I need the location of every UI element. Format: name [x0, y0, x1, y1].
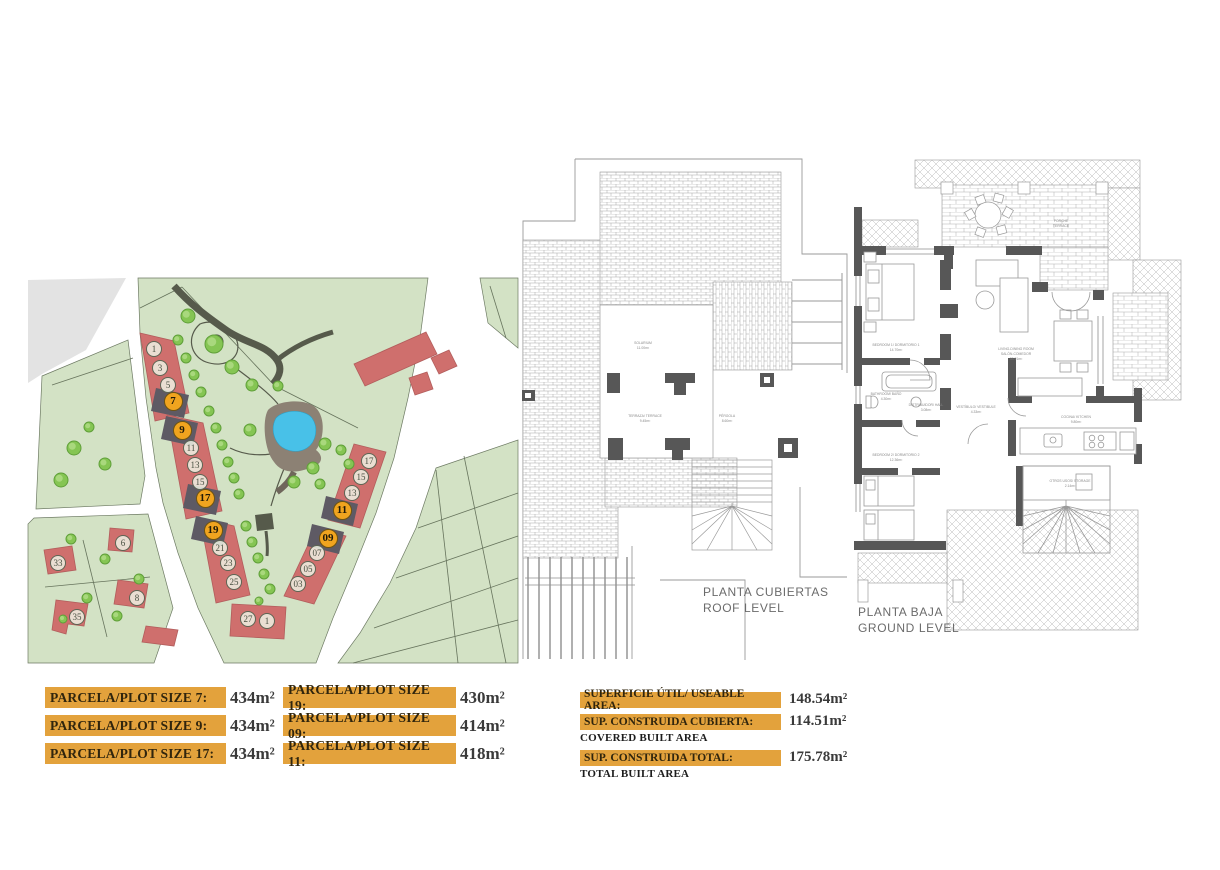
svg-text:11.00m²: 11.00m² [637, 346, 650, 350]
tree-highlight [218, 441, 223, 446]
built-area-row: SUP. CONSTRUIDA CUBIERTA:114.51m²COVERED… [580, 713, 847, 744]
svg-text:LIVING-DINING ROOM: LIVING-DINING ROOM [998, 347, 1034, 351]
svg-text:BEDROOM 1/ DORMITORIO 1: BEDROOM 1/ DORMITORIO 1 [872, 343, 919, 347]
plot-size-row: PARCELA/PLOT SIZE 19:430m² [283, 687, 505, 708]
svg-text:9.80m²: 9.80m² [1071, 420, 1082, 424]
plot-size-value: 414m² [460, 716, 505, 736]
built-area-value: 175.78m² [789, 749, 847, 766]
built-area-label-bar: SUP. CONSTRUIDA CUBIERTA: [580, 714, 781, 730]
tree-highlight [337, 446, 342, 451]
svg-text:12.36m²: 12.36m² [890, 458, 903, 462]
tree-highlight [242, 522, 247, 527]
plot-size-row: PARCELA/PLOT SIZE 7:434m² [45, 687, 275, 708]
tree-highlight [235, 490, 240, 495]
tree-highlight [69, 443, 76, 450]
green-parcels [28, 278, 518, 663]
tree-highlight [207, 337, 216, 346]
tree-highlight [205, 407, 210, 412]
plot-size-row: PARCELA/PLOT SIZE 09:414m² [283, 715, 505, 736]
svg-text:33.91m²: 33.91m² [1010, 357, 1023, 361]
built-area-label-bar: SUP. CONSTRUIDA TOTAL: [580, 750, 781, 766]
svg-text:COCINA/ KITCHEN: COCINA/ KITCHEN [1061, 415, 1092, 419]
tree-highlight [67, 535, 72, 540]
ground-level-plan: PORCHE TERRACE BEDROOM 1/ DORMITORIO 1 1… [848, 148, 1188, 648]
tree-highlight [60, 616, 64, 620]
svg-text:GROUND LEVEL: GROUND LEVEL [858, 621, 959, 635]
svg-text:DISTRIBUIDOR/ HALL: DISTRIBUIDOR/ HALL [909, 403, 944, 407]
tree-highlight [274, 382, 279, 387]
tree-highlight [246, 426, 252, 432]
svg-text:BATHROOM/ BAÑO: BATHROOM/ BAÑO [871, 391, 902, 396]
svg-text:SALÓN-COMEDOR: SALÓN-COMEDOR [1001, 351, 1032, 356]
tree-highlight [309, 464, 315, 470]
svg-text:PORCHE: PORCHE [1054, 219, 1069, 223]
plot-size-row: PARCELA/PLOT SIZE 9:434m² [45, 715, 275, 736]
svg-text:SOLARIUM: SOLARIUM [634, 341, 652, 345]
svg-text:BEDROOM 2/ DORMITORIO 2: BEDROOM 2/ DORMITORIO 2 [872, 453, 919, 457]
plot-size-row: PARCELA/PLOT SIZE 17:434m² [45, 743, 275, 764]
swimming-pool [273, 411, 316, 451]
tree-highlight [266, 585, 271, 590]
svg-text:PLANTA CUBIERTAS: PLANTA CUBIERTAS [703, 585, 829, 599]
tree-highlight [212, 424, 217, 429]
plot-size-column-1: PARCELA/PLOT SIZE 7:434m²PARCELA/PLOT SI… [45, 687, 275, 771]
tree-highlight [290, 478, 296, 484]
built-area-row: SUPERFICIE ÚTIL/ USEABLE AREA:148.54m² [580, 691, 847, 708]
tree-highlight [135, 575, 140, 580]
plot-size-value: 430m² [460, 688, 505, 708]
built-area-label-bar: SUPERFICIE ÚTIL/ USEABLE AREA: [580, 692, 781, 708]
tree-highlight [260, 570, 265, 575]
plot-size-label-bar: PARCELA/PLOT SIZE 09: [283, 715, 456, 736]
roof-fence [525, 546, 635, 659]
svg-text:ROOF LEVEL: ROOF LEVEL [703, 601, 784, 615]
plot-size-value: 418m² [460, 744, 505, 764]
tree-highlight [345, 460, 350, 465]
plot-size-value: 434m² [230, 744, 275, 764]
built-area-value: 148.54m² [789, 691, 847, 708]
tree-highlight [190, 371, 195, 376]
tree-highlight [227, 362, 234, 369]
tree-highlight [224, 458, 229, 463]
svg-text:3.08m²: 3.08m² [921, 408, 932, 412]
site-plan-map [28, 278, 518, 663]
brochure-page: { "colors": { "bar_orange": "#e3a23c", "… [0, 0, 1220, 870]
tree-highlight [85, 423, 90, 428]
svg-text:4.33m²: 4.33m² [971, 410, 982, 414]
tree-highlight [256, 598, 260, 602]
built-area-column: SUPERFICIE ÚTIL/ USEABLE AREA:148.54m²SU… [580, 691, 847, 785]
plot-size-value: 434m² [230, 688, 275, 708]
roof-plan-title: PLANTA CUBIERTAS ROOF LEVEL [703, 585, 829, 615]
svg-text:TERRAZA/ TERRACE: TERRAZA/ TERRACE [628, 414, 663, 418]
plot-size-column-2: PARCELA/PLOT SIZE 19:430m²PARCELA/PLOT S… [283, 687, 505, 771]
tree-highlight [113, 612, 118, 617]
plot-size-label-bar: PARCELA/PLOT SIZE 9: [45, 715, 226, 736]
tree-highlight [174, 336, 179, 341]
tree-highlight [321, 440, 327, 446]
plot-size-label-bar: PARCELA/PLOT SIZE 7: [45, 687, 226, 708]
plot-size-label-bar: PARCELA/PLOT SIZE 19: [283, 687, 456, 708]
tree-highlight [101, 460, 107, 466]
tree-highlight [182, 354, 187, 359]
roof-level-plan: SOLARIUM 11.00m² TERRAZA/ TERRACE 9.45m²… [515, 148, 847, 663]
tree-highlight [101, 555, 106, 560]
plot-size-label-bar: PARCELA/PLOT SIZE 17: [45, 743, 226, 764]
utility-square [255, 513, 274, 531]
svg-text:8.60m²: 8.60m² [722, 419, 733, 423]
svg-text:OTROS USOS/ STORAGE: OTROS USOS/ STORAGE [1049, 479, 1091, 483]
svg-text:PLANTA BAJA: PLANTA BAJA [858, 605, 943, 619]
built-area-value: 114.51m² [789, 713, 846, 730]
svg-text:PÉRGOLA: PÉRGOLA [719, 413, 736, 418]
built-area-sublabel: COVERED BUILT AREA [580, 732, 847, 744]
built-area-sublabel: TOTAL BUILT AREA [580, 768, 847, 780]
svg-text:VESTÍBULO/ VESTIBULE: VESTÍBULO/ VESTIBULE [956, 405, 996, 409]
plot-size-value: 434m² [230, 716, 275, 736]
tree-highlight [248, 381, 254, 387]
tree-highlight [56, 475, 63, 482]
tree-highlight [183, 311, 190, 318]
tree-highlight [254, 554, 259, 559]
svg-text:9.45m²: 9.45m² [640, 419, 651, 423]
tree-highlight [197, 388, 202, 393]
ground-plan-title: PLANTA BAJA GROUND LEVEL [858, 605, 959, 635]
svg-text:2.14m²: 2.14m² [1065, 484, 1076, 488]
svg-text:TERRACE: TERRACE [1053, 224, 1070, 228]
plot-size-row: PARCELA/PLOT SIZE 11:418m² [283, 743, 505, 764]
tree-highlight [248, 538, 253, 543]
svg-text:14.70m²: 14.70m² [890, 348, 903, 352]
tree-highlight [83, 594, 88, 599]
tree-highlight [316, 480, 321, 485]
pergola-slats [792, 273, 842, 370]
tree-highlight [230, 474, 235, 479]
svg-text:4.30m²: 4.30m² [881, 397, 892, 401]
built-area-row: SUP. CONSTRUIDA TOTAL:175.78m²TOTAL BUIL… [580, 749, 847, 780]
plot-size-label-bar: PARCELA/PLOT SIZE 11: [283, 743, 456, 764]
